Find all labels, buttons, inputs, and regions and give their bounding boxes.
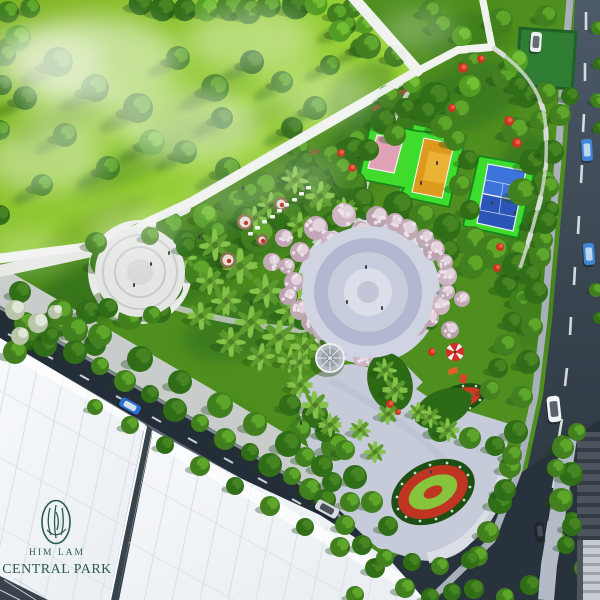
svg-text:HIM LAM: HIM LAM <box>29 548 85 558</box>
svg-text:CENTRAL PARK: CENTRAL PARK <box>2 562 112 577</box>
